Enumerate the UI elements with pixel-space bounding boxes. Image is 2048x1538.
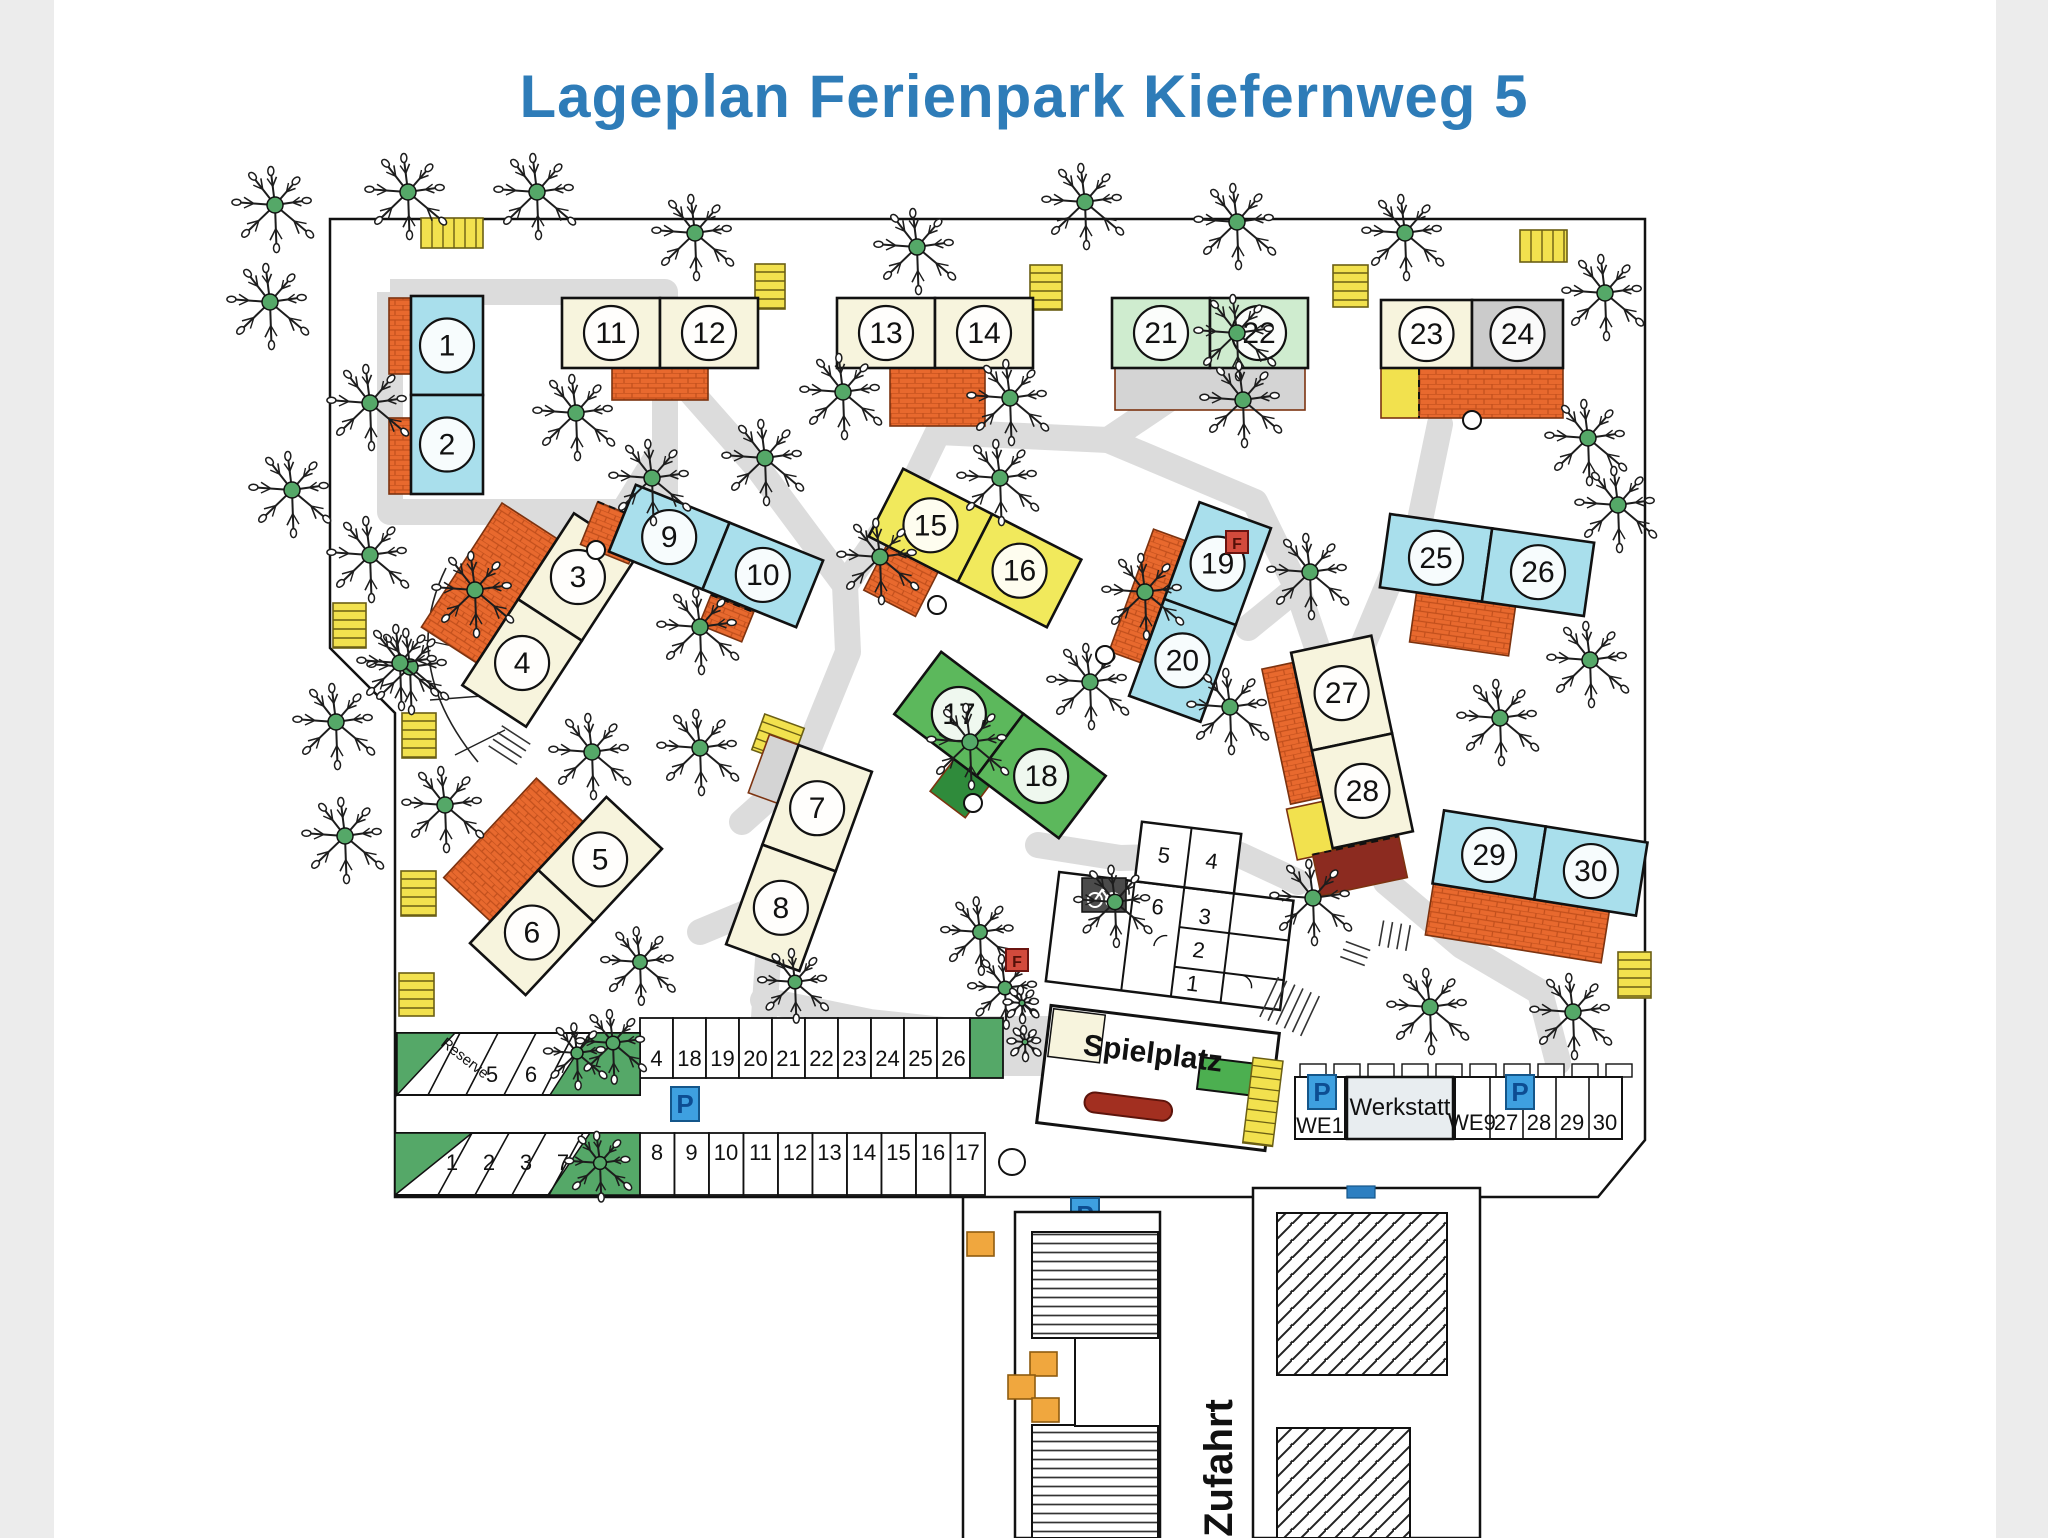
manhole-circle: [587, 541, 605, 559]
stall-label: 27: [1494, 1110, 1518, 1135]
unit-number-27: 27: [1315, 666, 1369, 720]
unit-number-26: 26: [1511, 545, 1565, 599]
terrace: [389, 298, 411, 374]
tree: [227, 264, 310, 350]
manhole-circle: [928, 596, 946, 614]
manhole-circle: [1096, 646, 1114, 664]
parking-stall-label: 11: [749, 1140, 772, 1165]
terrace: [1115, 368, 1305, 410]
svg-text:27: 27: [1325, 677, 1358, 710]
green-stall: [970, 1018, 1003, 1078]
svg-text:7: 7: [809, 792, 826, 825]
parking-stall-label: 15: [886, 1140, 910, 1165]
parking-stall-label: 25: [908, 1046, 932, 1071]
svg-text:6: 6: [525, 1062, 537, 1087]
parking-stall-label: 14: [852, 1140, 876, 1165]
unit-number-15: 15: [903, 498, 957, 552]
parking-stall-label: 3: [520, 1150, 532, 1175]
svg-text:F: F: [1232, 536, 1242, 553]
parking-stall-label: 2: [483, 1150, 495, 1175]
svg-text:F: F: [1012, 954, 1022, 971]
svg-text:P: P: [676, 1089, 693, 1119]
parking-stall-label: 1: [446, 1150, 458, 1175]
hydrant-sign: F: [1006, 949, 1028, 971]
svg-text:15: 15: [914, 509, 947, 542]
orange-marker: [1008, 1375, 1035, 1399]
parking-stall-label: 17: [955, 1140, 979, 1165]
svg-text:18: 18: [1024, 760, 1057, 793]
parking-sign: P: [671, 1087, 699, 1121]
parking-stall-label: 20: [743, 1046, 767, 1071]
parking-stall-label: 18: [677, 1046, 701, 1071]
unit-number-10: 10: [736, 548, 790, 602]
svg-text:11: 11: [595, 317, 626, 350]
parking-stall-label: 19: [710, 1046, 734, 1071]
unit-number-25: 25: [1409, 531, 1463, 585]
svg-text:23: 23: [1410, 318, 1443, 351]
parking-row-upper-straight: 4181920212223242526: [640, 1018, 1003, 1078]
svg-text:12: 12: [692, 317, 725, 350]
carport: [1333, 265, 1368, 307]
parking-stall-label: 10: [714, 1140, 738, 1165]
stall-label: 28: [1527, 1110, 1551, 1135]
terrace: [1381, 368, 1419, 418]
svg-text:8: 8: [773, 892, 790, 925]
walkway: [938, 432, 1108, 440]
terrace: [612, 368, 708, 400]
werkstatt-label: Werkstatt: [1350, 1094, 1451, 1121]
stall-label-we1: WE1: [1296, 1113, 1344, 1138]
orange-marker: [967, 1232, 994, 1256]
scan-edge-right: [1996, 0, 2048, 1538]
manhole-circle: [1463, 411, 1481, 429]
parking-row-lower-straight: 891011121314151617: [640, 1133, 985, 1195]
unit-number-23: 23: [1400, 307, 1454, 361]
parking-stall-label: 24: [875, 1046, 899, 1071]
scan-edge-left: [0, 0, 54, 1538]
svg-text:14: 14: [967, 317, 1000, 350]
parking-stall-label: 13: [817, 1140, 841, 1165]
carport: [333, 603, 366, 648]
terrace: [1419, 368, 1563, 418]
svg-text:3: 3: [570, 561, 587, 594]
unit-number-9: 9: [642, 510, 696, 564]
svg-text:4: 4: [514, 647, 531, 680]
svg-text:P: P: [1511, 1077, 1528, 1107]
unit-number-29: 29: [1462, 828, 1516, 882]
unit-number-21: 21: [1134, 306, 1188, 360]
unit-number-2: 2: [420, 418, 474, 472]
unit-number-28: 28: [1335, 764, 1389, 818]
svg-text:6: 6: [524, 917, 541, 950]
svg-text:P: P: [1313, 1077, 1330, 1107]
svg-text:10: 10: [746, 559, 779, 592]
svg-text:13: 13: [869, 317, 902, 350]
parking-sign: P: [1506, 1075, 1534, 1109]
orange-marker: [1032, 1398, 1059, 1422]
unit-number-5: 5: [573, 832, 627, 886]
hydrant-sign: F: [1226, 531, 1248, 553]
unit-number-4: 4: [495, 636, 549, 690]
carport: [402, 713, 436, 758]
carport: [421, 218, 483, 248]
parking-stall-label: 22: [809, 1046, 833, 1071]
stall-label: WE9: [1448, 1110, 1496, 1135]
manhole-circle: [999, 1149, 1025, 1175]
svg-text:9: 9: [661, 521, 678, 554]
svg-text:5: 5: [486, 1062, 498, 1087]
svg-text:1: 1: [439, 330, 456, 363]
zufahrt-label: Zufahrt: [1197, 1399, 1241, 1537]
site-plan-map: 1234567891011121314151617181920212223242…: [0, 0, 2048, 1538]
parking-stall-label: 16: [921, 1140, 945, 1165]
unit-number-30: 30: [1564, 844, 1618, 898]
carport: [1030, 265, 1062, 310]
parking-stall-label: 9: [685, 1140, 697, 1165]
stall-label: 29: [1560, 1110, 1584, 1135]
carport: [1618, 952, 1651, 998]
parking-stall-label: 8: [651, 1140, 663, 1165]
stall-label: 30: [1593, 1110, 1617, 1135]
tree: [302, 798, 385, 884]
svg-text:16: 16: [1003, 555, 1036, 588]
manhole-circle: [964, 794, 982, 812]
svg-text:29: 29: [1472, 839, 1505, 872]
unit-number-8: 8: [754, 881, 808, 935]
svg-text:25: 25: [1419, 542, 1452, 575]
site-plan-page: Lageplan Ferienpark Kiefernweg 5 1234567…: [0, 0, 2048, 1538]
building-23-24: 2324: [1381, 300, 1563, 418]
carport: [401, 871, 436, 916]
svg-text:2: 2: [439, 429, 456, 462]
svg-text:30: 30: [1574, 855, 1607, 888]
unit-number-7: 7: [790, 781, 844, 835]
parking-stall-label: 4: [650, 1046, 662, 1071]
unit-number-6: 6: [505, 906, 559, 960]
parking-stall-label: 12: [783, 1140, 807, 1165]
neighbour-parcels: Zufahrt: [963, 1186, 1480, 1538]
parking-stall-label: 21: [776, 1046, 800, 1071]
tree: [249, 452, 332, 538]
svg-text:21: 21: [1144, 317, 1177, 350]
unit-number-14: 14: [957, 306, 1011, 360]
orange-marker: [1030, 1352, 1057, 1376]
carport: [755, 264, 785, 309]
tree: [293, 684, 376, 770]
unit-number-1: 1: [420, 319, 474, 373]
tree: [232, 167, 315, 253]
svg-text:24: 24: [1501, 318, 1534, 351]
unit-number-20: 20: [1155, 633, 1209, 687]
carport: [1520, 230, 1567, 262]
parking-sign: P: [1308, 1075, 1336, 1109]
unit-number-18: 18: [1014, 749, 1068, 803]
parking-stall-label: 26: [941, 1046, 965, 1071]
svg-text:26: 26: [1521, 556, 1554, 589]
unit-number-24: 24: [1491, 307, 1545, 361]
unit-number-12: 12: [682, 306, 736, 360]
svg-text:5: 5: [592, 843, 609, 876]
unit-number-11: 11: [584, 306, 638, 360]
svg-text:20: 20: [1166, 644, 1199, 677]
unit-number-16: 16: [993, 544, 1047, 598]
carport: [399, 973, 434, 1016]
parking-stall-label: 23: [842, 1046, 866, 1071]
svg-text:28: 28: [1346, 775, 1379, 808]
unit-number-13: 13: [859, 306, 913, 360]
